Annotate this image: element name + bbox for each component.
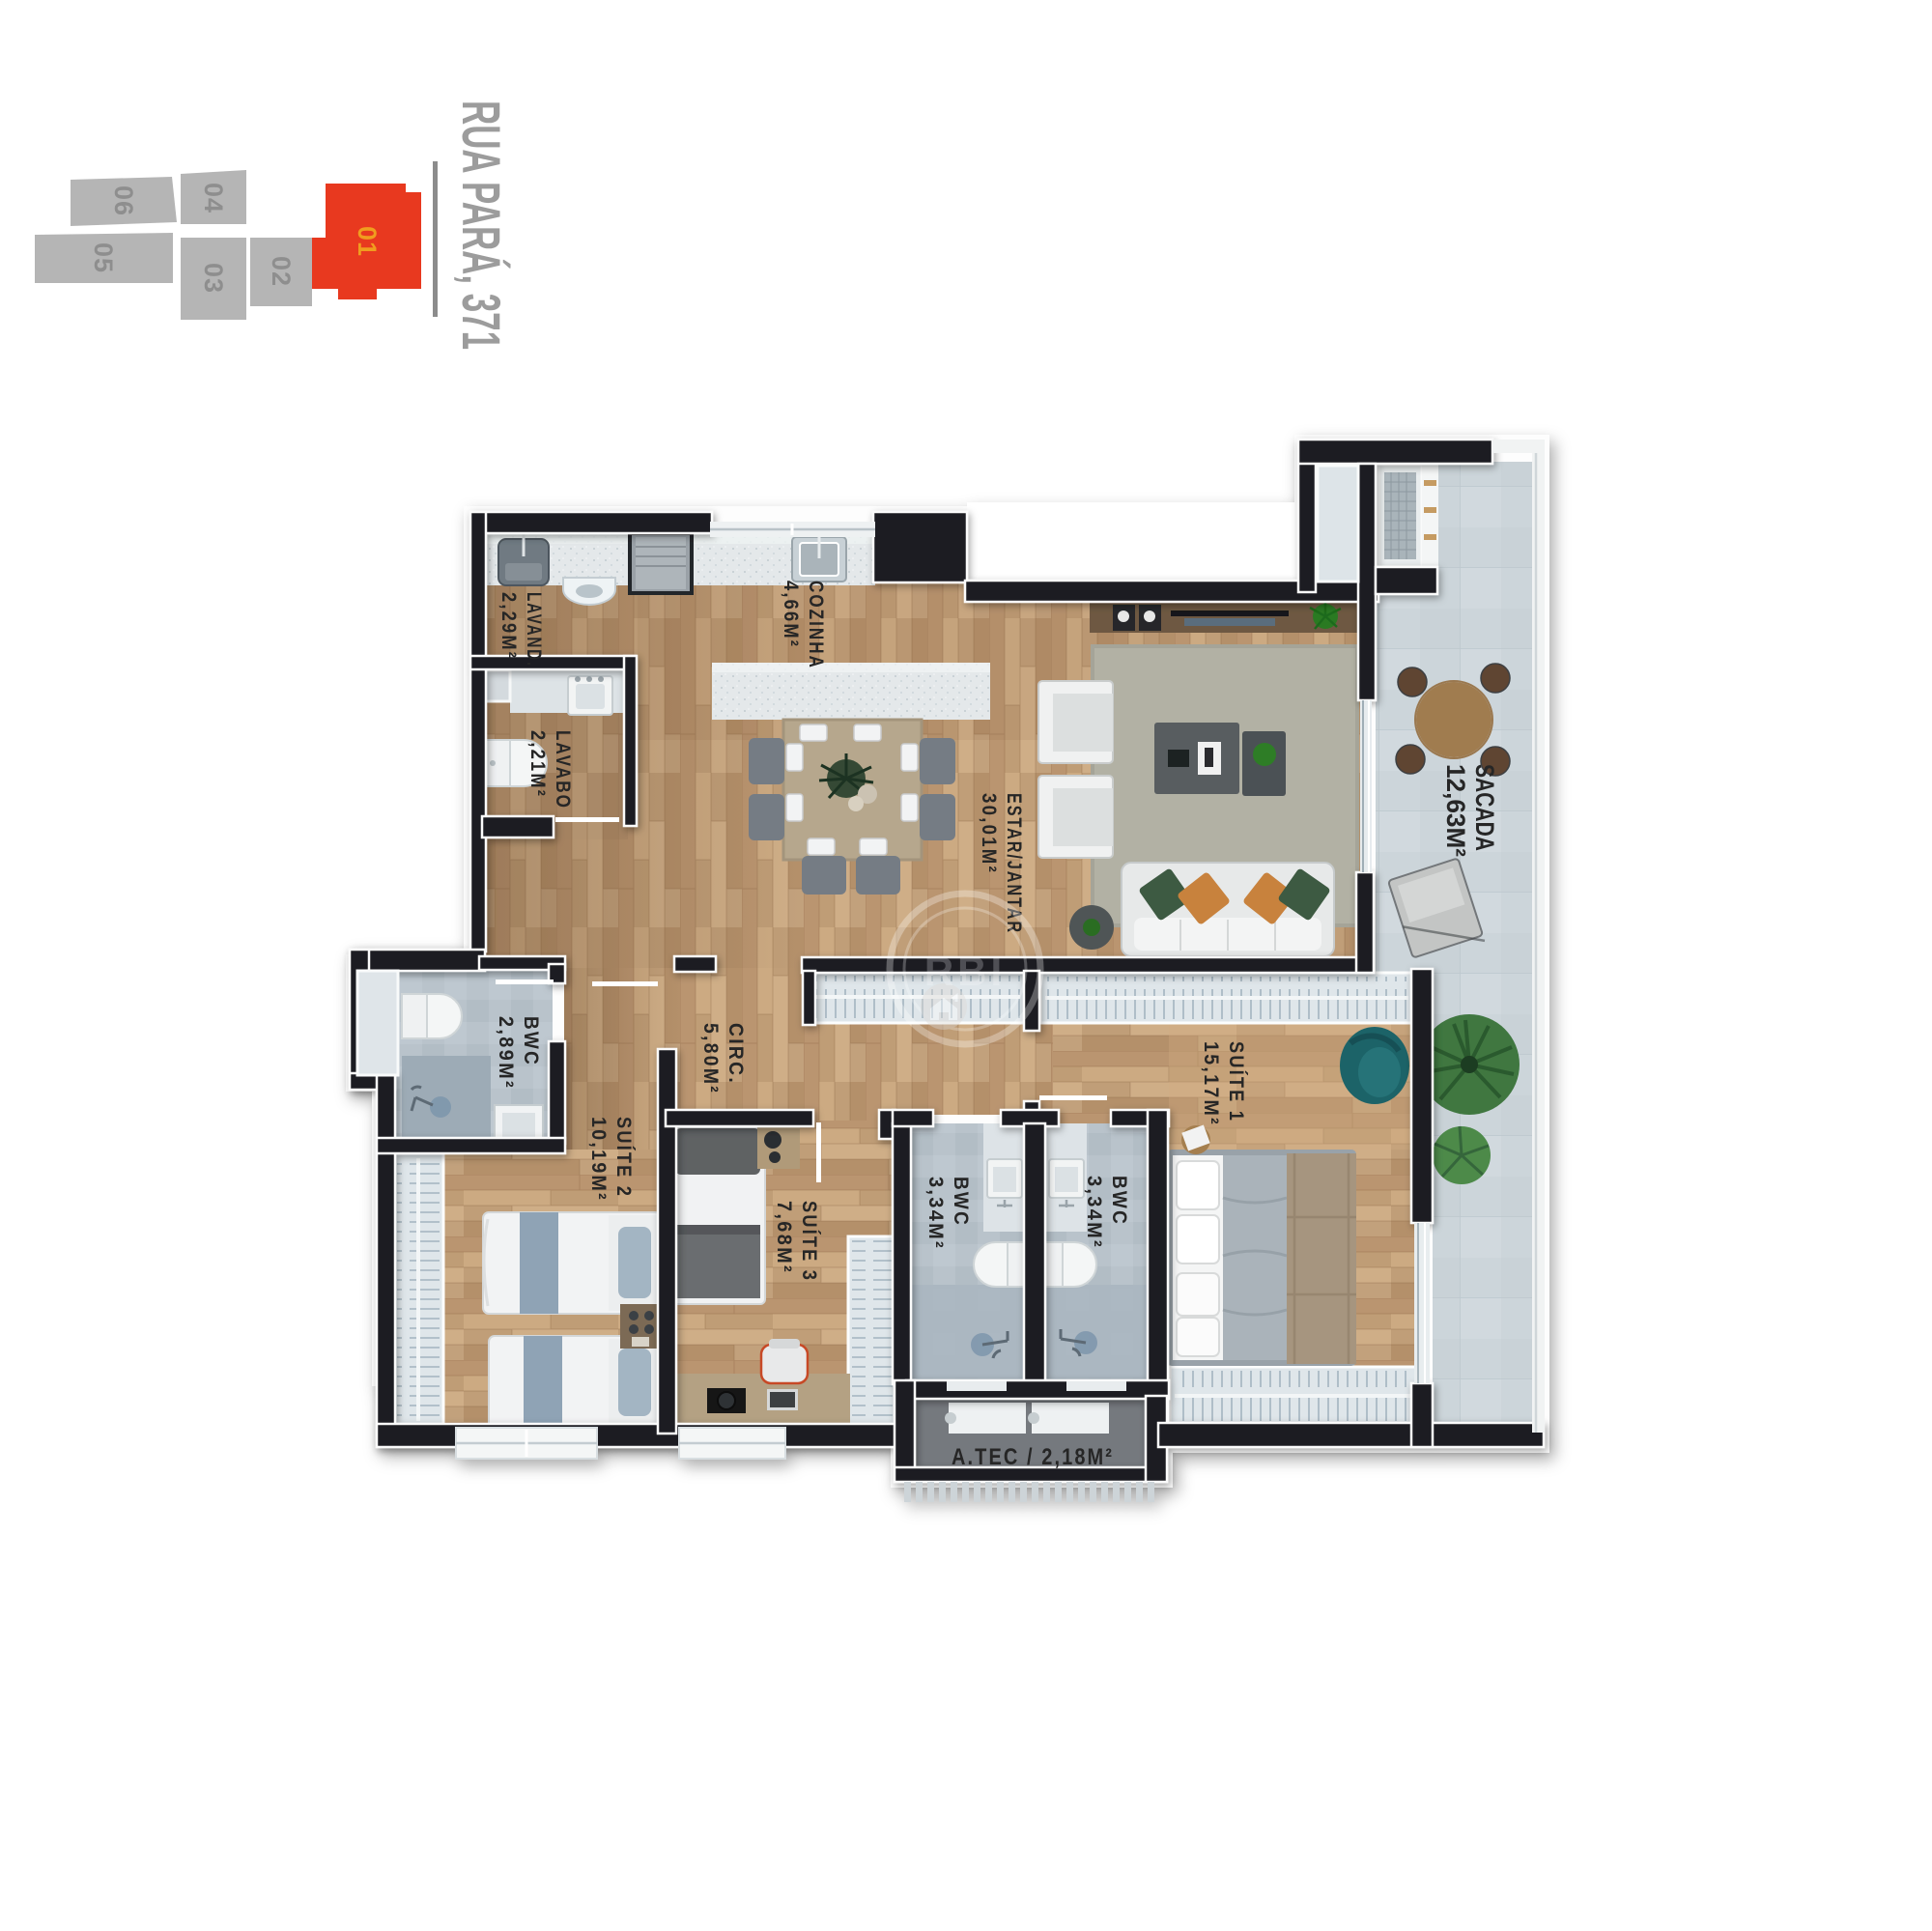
svg-text:A.TEC / 2,18M²: A.TEC / 2,18M²: [952, 1444, 1114, 1470]
svg-text:06: 06: [109, 185, 138, 216]
svg-text:RBI: RBI: [924, 949, 1006, 994]
svg-text:05: 05: [89, 242, 118, 273]
svg-text:SACADA12,63M²: SACADA12,63M²: [1441, 764, 1499, 857]
svg-text:03: 03: [199, 263, 228, 294]
svg-text:02: 02: [267, 256, 296, 287]
svg-text:RUA PARÁ, 371: RUA PARÁ, 371: [451, 100, 512, 350]
svg-text:04: 04: [199, 183, 228, 213]
svg-text:01: 01: [353, 226, 382, 257]
